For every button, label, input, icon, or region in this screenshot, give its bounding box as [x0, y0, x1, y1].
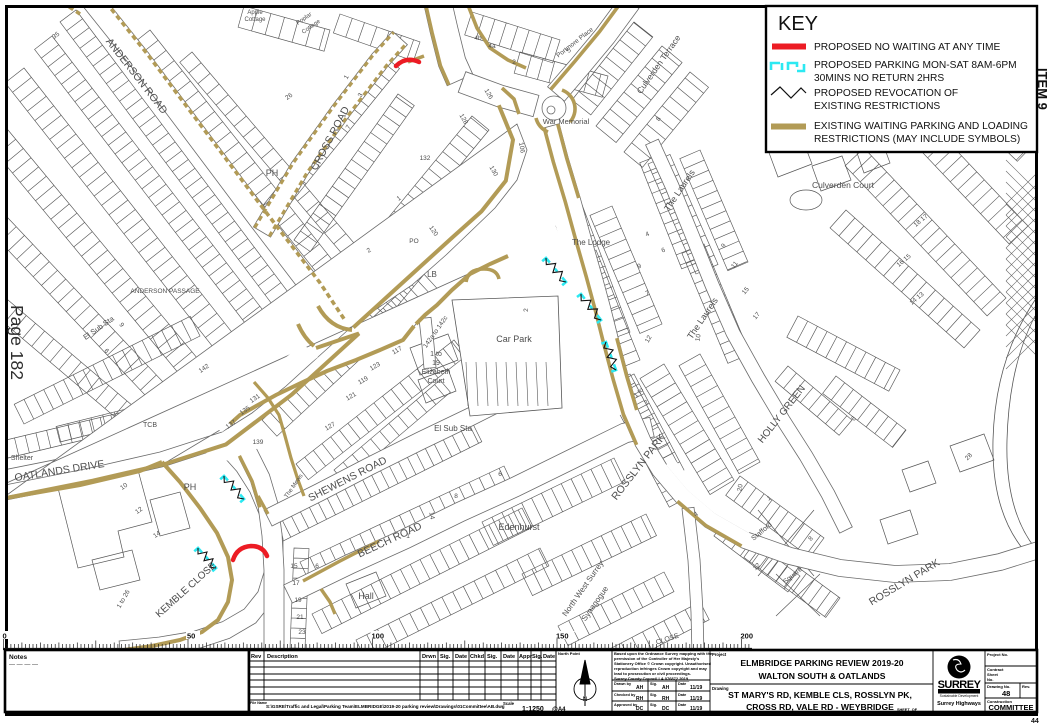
svg-text:LB: LB: [427, 270, 437, 279]
svg-text:War Memorial: War Memorial: [543, 117, 590, 126]
svg-text:Drawing: Drawing: [712, 686, 729, 691]
svg-text:Culverden Court: Culverden Court: [812, 180, 875, 190]
svg-text:Shelter: Shelter: [11, 455, 34, 462]
svg-text:17: 17: [292, 580, 300, 587]
svg-text:2: 2: [512, 59, 516, 66]
svg-text:S:\GSRE\Traffic and Legal\Park: S:\GSRE\Traffic and Legal\Parking Team\E…: [266, 704, 505, 709]
svg-text:DC: DC: [662, 706, 670, 712]
svg-text:Apple: Apple: [247, 10, 263, 16]
svg-text:PROPOSED NO WAITING AT ANY TIM: PROPOSED NO WAITING AT ANY TIME: [814, 42, 1000, 53]
svg-text:Surrey Highways: Surrey Highways: [937, 701, 981, 707]
svg-text:Date: Date: [678, 703, 686, 707]
svg-text:CROSS RD, VALE RD - WEYBRIDGE: CROSS RD, VALE RD - WEYBRIDGE: [746, 702, 894, 712]
svg-text:Date: Date: [455, 654, 467, 660]
svg-text:Date: Date: [678, 682, 686, 686]
svg-text:KEY: KEY: [778, 13, 818, 35]
svg-text:Drawn by: Drawn by: [614, 682, 632, 686]
svg-text:Surrey County Council LA 07687: Surrey County Council LA 076872 2019.: [614, 676, 689, 681]
svg-text:PROPOSED PARKING MON-SAT 8AM-6: PROPOSED PARKING MON-SAT 8AM-6PM: [814, 60, 1017, 71]
svg-text:Description: Description: [267, 654, 298, 660]
svg-text:4a: 4a: [488, 43, 496, 50]
svg-text:Project: Project: [712, 652, 727, 657]
svg-text:RH: RH: [636, 696, 644, 702]
svg-text:N: N: [583, 696, 588, 703]
svg-text:Rev.: Rev.: [1022, 684, 1030, 689]
svg-text:Car Park: Car Park: [496, 334, 532, 344]
svg-text:19: 19: [294, 597, 302, 604]
svg-text:8: 8: [454, 493, 458, 500]
svg-text:Sig.: Sig.: [650, 703, 657, 707]
svg-text:Sig.: Sig.: [650, 682, 657, 686]
svg-text:File Name: File Name: [250, 701, 267, 705]
svg-text:4b: 4b: [474, 35, 482, 42]
svg-text:RESTRICTIONS (MAY INCLUDE SYMB: RESTRICTIONS (MAY INCLUDE SYMBOLS): [814, 134, 1020, 145]
svg-text:TCB: TCB: [143, 422, 157, 429]
svg-text:EXISTING WAITING PARKING AND L: EXISTING WAITING PARKING AND LOADING: [814, 121, 1028, 132]
svg-text:139: 139: [253, 439, 264, 446]
svg-text:Appr: Appr: [519, 654, 533, 660]
svg-text:0: 0: [3, 632, 7, 641]
svg-text:150: 150: [556, 632, 569, 641]
svg-text:Date: Date: [678, 693, 686, 697]
svg-text:Notes: Notes: [9, 654, 27, 661]
svg-text:@A4: @A4: [552, 707, 566, 713]
svg-text:1:1250: 1:1250: [522, 706, 544, 713]
svg-text:11/19: 11/19: [690, 706, 702, 712]
svg-text:Project No.: Project No.: [987, 652, 1008, 657]
svg-text:30MINS NO RETURN 2HRS: 30MINS NO RETURN 2HRS: [814, 73, 944, 84]
svg-text:6: 6: [315, 563, 319, 570]
svg-text:ANDERSON PASSAGE: ANDERSON PASSAGE: [130, 288, 200, 295]
svg-text:Sig.: Sig.: [440, 654, 451, 660]
svg-text:Checked by: Checked by: [614, 693, 636, 697]
svg-text:Approved by: Approved by: [614, 703, 638, 707]
svg-text:Cottage: Cottage: [244, 17, 266, 23]
svg-text:EXISTING RESTRICTIONS: EXISTING RESTRICTIONS: [814, 101, 940, 112]
svg-text:48: 48: [1002, 689, 1010, 698]
svg-text:North Point: North Point: [558, 651, 580, 656]
svg-text:Elizabeth: Elizabeth: [422, 369, 451, 376]
svg-text:PROPOSED REVOCATION OF: PROPOSED REVOCATION OF: [814, 88, 958, 99]
svg-text:132: 132: [420, 155, 431, 162]
svg-text:PH: PH: [266, 168, 279, 178]
svg-text:No.: No.: [987, 677, 993, 682]
svg-text:Sig.: Sig.: [487, 654, 498, 660]
svg-text:ITEM 9: ITEM 9: [1035, 68, 1049, 110]
svg-text:Page 182: Page 182: [7, 305, 27, 380]
svg-text:Rev: Rev: [251, 654, 262, 660]
svg-text:El Sub Sta: El Sub Sta: [434, 424, 472, 433]
svg-text:11/19: 11/19: [690, 685, 702, 691]
svg-text:Date: Date: [503, 654, 515, 660]
svg-text:15: 15: [290, 563, 298, 570]
svg-text:SHEET OF: SHEET OF: [897, 708, 918, 712]
svg-text:PH: PH: [184, 482, 197, 492]
svg-text:Date: Date: [543, 654, 555, 660]
svg-text:6: 6: [498, 471, 502, 478]
svg-text:ST MARY'S RD, KEMBLE CLS, ROSS: ST MARY'S RD, KEMBLE CLS, ROSSLYN PK,: [728, 690, 912, 700]
svg-text:Sig.: Sig.: [650, 693, 657, 697]
svg-text:AH: AH: [662, 685, 670, 691]
svg-text:11/19: 11/19: [690, 696, 702, 702]
svg-text:ELMBRIDGE PARKING REVIEW 2019-: ELMBRIDGE PARKING REVIEW 2019-20: [740, 658, 903, 668]
svg-text:AH: AH: [636, 685, 644, 691]
svg-text:PO: PO: [409, 238, 418, 245]
svg-text:Sustainable Development: Sustainable Development: [940, 694, 979, 698]
svg-text:Sig.: Sig.: [532, 654, 543, 660]
svg-text:DC: DC: [636, 706, 644, 712]
svg-text:19: 19: [432, 360, 440, 367]
svg-text:Edenhurst: Edenhurst: [498, 522, 540, 532]
svg-text:COMMITTEE: COMMITTEE: [989, 703, 1034, 712]
svg-text:Drwn: Drwn: [422, 654, 437, 660]
svg-text:100: 100: [372, 632, 385, 641]
svg-text:44: 44: [1031, 718, 1039, 724]
svg-text:2: 2: [523, 308, 530, 312]
svg-text:Chkd: Chkd: [470, 654, 485, 660]
svg-text:WALTON SOUTH & OATLANDS: WALTON SOUTH & OATLANDS: [759, 671, 886, 681]
svg-text:21: 21: [296, 614, 304, 621]
svg-text:200: 200: [741, 632, 754, 641]
svg-text:50: 50: [187, 632, 195, 641]
svg-text:RH: RH: [662, 696, 670, 702]
svg-text:Scale: Scale: [503, 701, 515, 706]
svg-text:The Lodge: The Lodge: [572, 238, 611, 247]
svg-text:1: 1: [406, 533, 410, 540]
svg-text:1 to: 1 to: [430, 351, 442, 358]
svg-text:Court: Court: [427, 378, 444, 385]
svg-text:23: 23: [298, 629, 306, 636]
svg-text:Hall: Hall: [358, 591, 374, 601]
svg-text:— — — —: — — — —: [9, 662, 38, 668]
